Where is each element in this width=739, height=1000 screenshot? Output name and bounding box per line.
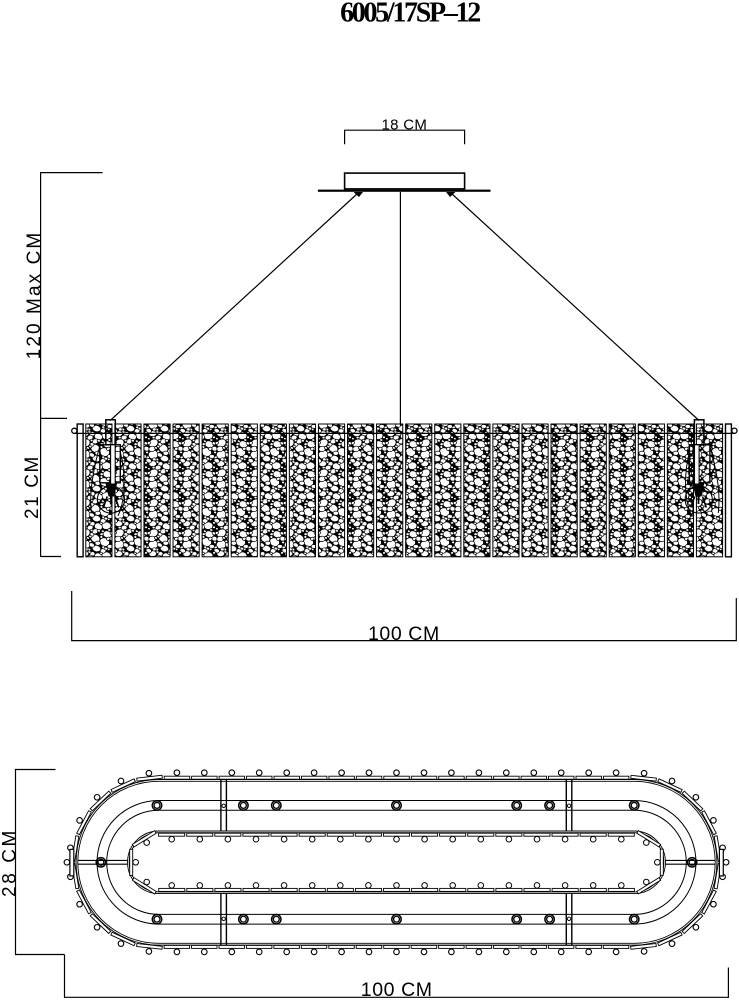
svg-text:120 Max CM: 120 Max CM — [24, 231, 45, 360]
svg-text:6005/17SP–12: 6005/17SP–12 — [340, 0, 480, 28]
svg-text:21 CM: 21 CM — [22, 455, 43, 519]
svg-text:28 CM: 28 CM — [0, 828, 20, 897]
svg-text:18 CM: 18 CM — [381, 117, 427, 134]
svg-text:100 CM: 100 CM — [361, 979, 433, 1000]
svg-text:100 CM: 100 CM — [368, 623, 440, 645]
